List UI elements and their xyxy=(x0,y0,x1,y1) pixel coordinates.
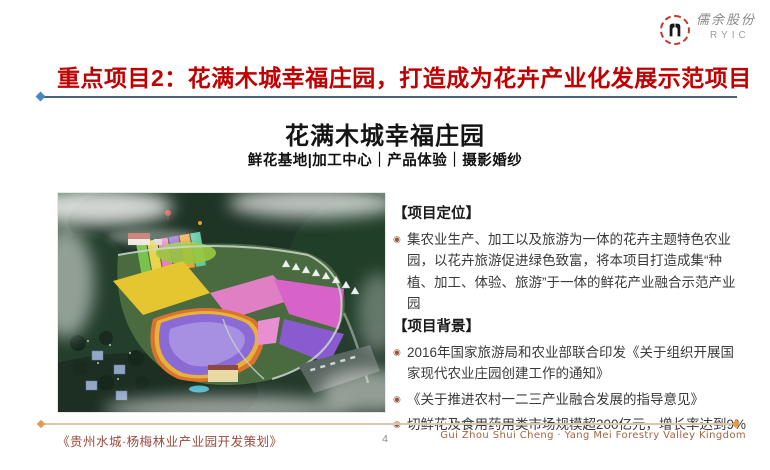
underline-diamond-icon xyxy=(36,92,46,102)
page-title: 重点项目2：花满木城幸福庄园，打造成为花卉产业化发展示范项目 xyxy=(57,59,752,93)
bullet-item: ◉ 集农业生产、加工以及旅游为一体的花卉主题特色农业园，以花卉旅游促进绿色致富，… xyxy=(393,229,747,314)
bullet-text: 2016年国家旅游局和农业部联合印发《关于组织开展国家现代农业庄园创建工作的通知… xyxy=(407,342,747,385)
bullet-item: ◉ 2016年国家旅游局和农业部联合印发《关于组织开展国家现代农业庄园创建工作的… xyxy=(393,342,747,385)
section-header: 【项目背景】 xyxy=(393,318,747,337)
logo-company-name: 儒余股份 xyxy=(696,13,756,28)
project-aerial-image xyxy=(58,193,385,412)
footer-english-title: Gui Zhou Shui Cheng · Yang Mei Forestry … xyxy=(440,430,746,441)
bullet-icon: ◉ xyxy=(393,342,407,363)
title-underline xyxy=(40,96,737,98)
footer-diamond-left-icon xyxy=(37,419,45,427)
section-background: 【项目背景】 ◉ 2016年国家旅游局和农业部联合印发《关于组织开展国家现代农业… xyxy=(393,318,747,435)
hero-title: 花满木城幸福庄园 xyxy=(0,116,770,151)
bullet-icon: ◉ xyxy=(393,389,407,410)
slide: 儒余股份 RYIC 重点项目2：花满木城幸福庄园，打造成为花卉产业化发展示范项目… xyxy=(0,0,770,470)
bullet-icon: ◉ xyxy=(393,229,407,250)
section-positioning: 【项目定位】 ◉ 集农业生产、加工以及旅游为一体的花卉主题特色农业园，以花卉旅游… xyxy=(393,205,747,314)
section-header: 【项目定位】 xyxy=(393,205,747,224)
logo-figures-icon xyxy=(660,15,690,45)
company-logo: 儒余股份 RYIC xyxy=(660,13,756,45)
project-info-panel: 【项目定位】 ◉ 集农业生产、加工以及旅游为一体的花卉主题特色农业园，以花卉旅游… xyxy=(393,205,747,439)
hero-subtitle: 鲜花基地|加工中心｜产品体验｜摄影婚纱 xyxy=(0,149,770,170)
bullet-item: ◉ 《关于推进农村一二三产业融合发展的指导意见》 xyxy=(393,389,747,410)
logo-abbr: RYIC xyxy=(696,30,756,42)
footer-divider xyxy=(40,423,737,425)
bullet-text: 集农业生产、加工以及旅游为一体的花卉主题特色农业园，以花卉旅游促进绿色致富，将本… xyxy=(407,229,747,314)
bullet-text: 《关于推进农村一二三产业融合发展的指导意见》 xyxy=(407,389,704,410)
